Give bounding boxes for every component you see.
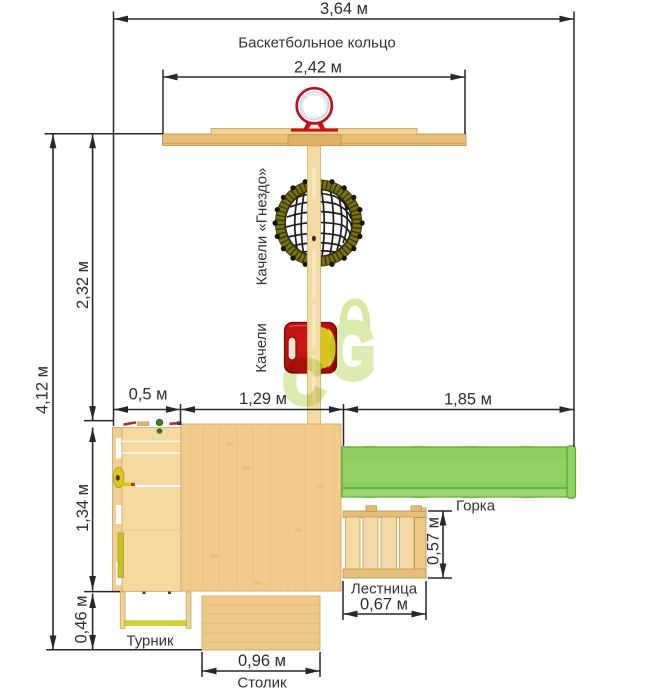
svg-text:Качели «Гнездо»: Качели «Гнездо» (254, 168, 271, 286)
svg-text:Качели: Качели (253, 323, 270, 373)
svg-text:0,57 м: 0,57 м (425, 517, 443, 565)
svg-text:3,64 м: 3,64 м (320, 0, 368, 18)
svg-text:4,12 м: 4,12 м (34, 366, 52, 414)
svg-text:0,96 м: 0,96 м (238, 652, 286, 670)
svg-text:0,5 м: 0,5 м (129, 386, 168, 404)
svg-text:2,42 м: 2,42 м (294, 59, 342, 77)
svg-text:0,46 м: 0,46 м (73, 595, 91, 643)
svg-text:1,85 м: 1,85 м (444, 391, 492, 409)
svg-text:Баскетбольное кольцо: Баскетбольное кольцо (238, 35, 396, 52)
svg-text:Столик: Столик (237, 675, 287, 692)
svg-text:1,29 м: 1,29 м (239, 390, 287, 408)
svg-text:Горка: Горка (456, 498, 496, 515)
svg-text:1,34 м: 1,34 м (74, 484, 92, 532)
svg-text:0,67 м: 0,67 м (360, 596, 408, 614)
svg-text:С: С (283, 347, 325, 417)
svg-text:G: G (330, 306, 375, 395)
svg-text:Турник: Турник (126, 633, 174, 650)
svg-text:2,32 м: 2,32 м (74, 261, 92, 309)
